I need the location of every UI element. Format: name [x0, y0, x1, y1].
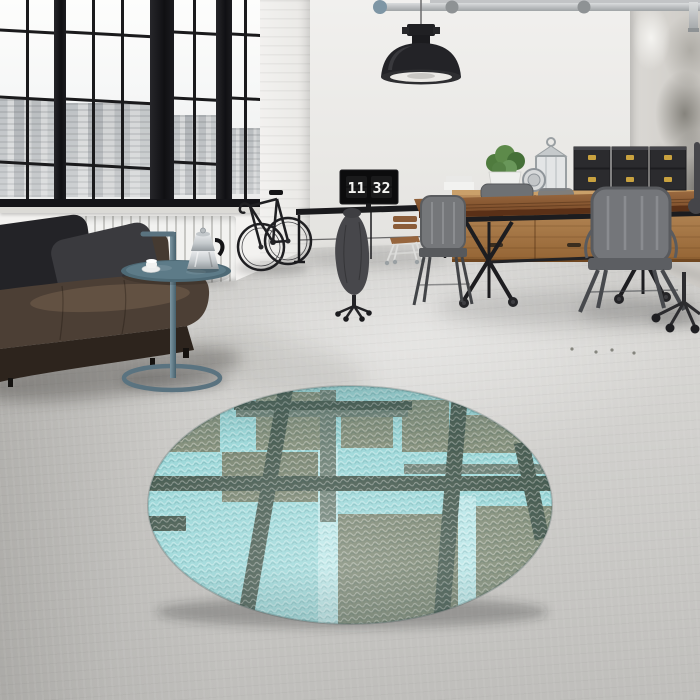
clock-minutes: 32: [372, 179, 390, 197]
storage-boxes: [574, 147, 686, 190]
metal-chair-left: [414, 196, 472, 305]
scene-objects: 11 32: [0, 0, 700, 700]
sofa: [0, 213, 209, 387]
paper-stack: [444, 176, 474, 190]
loft-room-photo: 11 32: [0, 0, 700, 700]
chair-base: [338, 306, 369, 318]
desk-chair-with-jacket: [335, 208, 372, 322]
clock-hours: 11: [347, 179, 365, 197]
potted-plant: [486, 145, 525, 190]
moka-pot: [187, 228, 222, 273]
monitor: 11 32: [340, 170, 398, 212]
floor-screws: [570, 347, 635, 354]
chair-wire-legs: [387, 242, 423, 262]
box-top-edges: [574, 147, 686, 150]
bike-saddle: [269, 190, 283, 195]
wood-office-chair: [385, 216, 425, 265]
table-casters: [459, 292, 671, 308]
box-row: [574, 147, 686, 190]
